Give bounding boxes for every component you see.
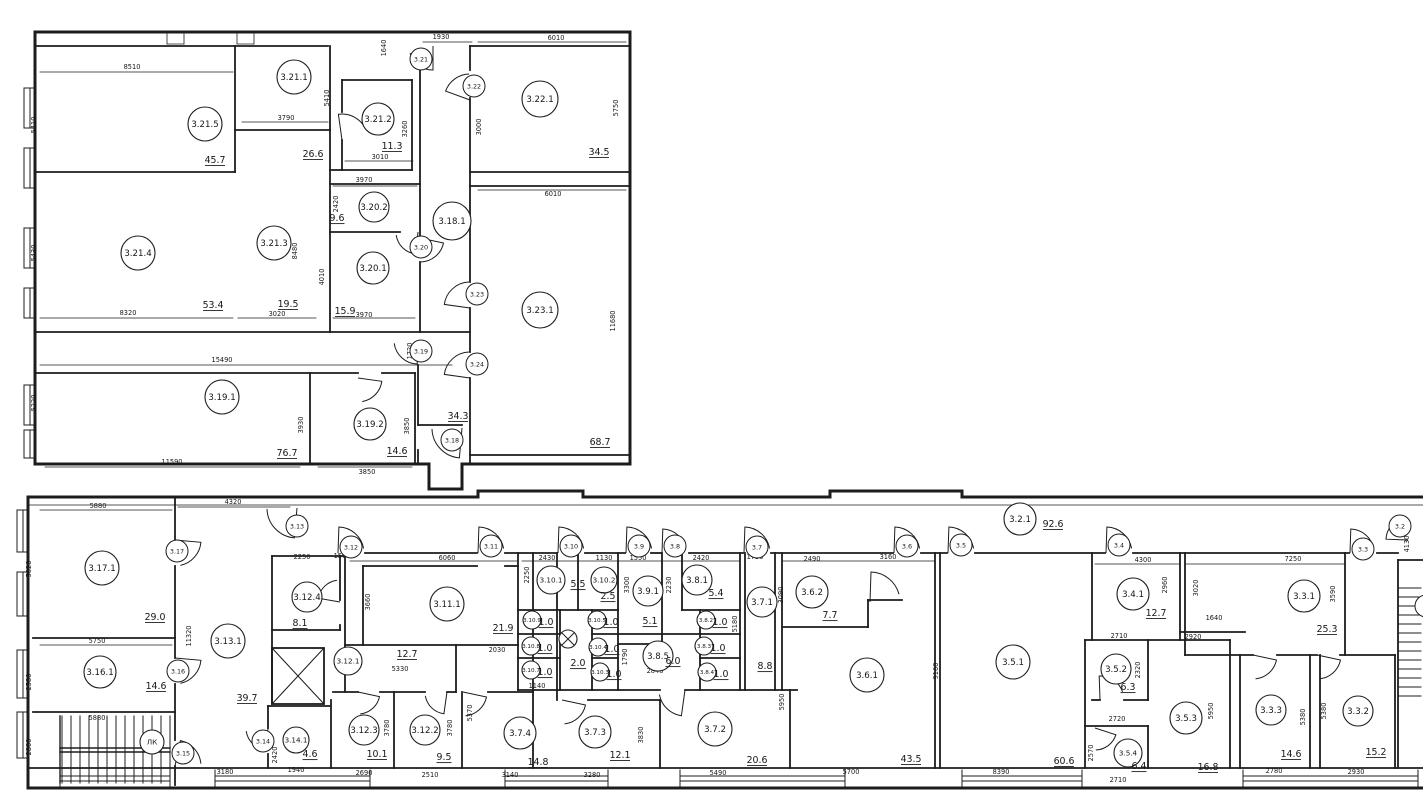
dimension-text: 3970	[356, 311, 373, 319]
door-label: 3.14	[252, 730, 274, 752]
room-label: 3.21.545.7	[188, 107, 225, 166]
room-label: 3.12.310.1	[349, 715, 387, 760]
door-label: 3.11	[480, 535, 502, 557]
room-area: 1.0	[604, 617, 619, 628]
svg-text:3.13: 3.13	[290, 522, 304, 530]
dimension-text: 5880	[90, 502, 107, 510]
svg-text:3.12: 3.12	[344, 543, 358, 551]
dimension-text: 5880	[89, 714, 106, 722]
dimension-text: 2250	[294, 553, 311, 561]
svg-text:3.5.4: 3.5.4	[1119, 749, 1138, 758]
dimension-text: 3660	[364, 594, 372, 611]
dimension-text: 9160	[932, 663, 940, 680]
elevator-shaft	[272, 648, 324, 704]
svg-text:3.22.1: 3.22.1	[526, 95, 553, 105]
room-area: 1.0	[711, 643, 726, 654]
dimension-text: 5380	[1320, 703, 1328, 720]
dimension-text: 2420	[271, 747, 279, 764]
dimension-text: 11680	[609, 311, 617, 332]
dimension-text: 3160	[880, 553, 897, 561]
dimension-text: 2320	[1134, 662, 1142, 679]
room-area: 1.0	[605, 644, 620, 655]
svg-text:3.2: 3.2	[1395, 522, 1405, 530]
svg-text:3.6: 3.6	[902, 542, 912, 550]
door-label: 3.19	[410, 340, 432, 362]
dimension-text: 3780	[383, 720, 391, 737]
room-area: 29.0	[145, 612, 166, 623]
dimension-text: 2250	[523, 567, 531, 584]
svg-text:3.19.2: 3.19.2	[356, 420, 383, 430]
dimension-text: 8480	[291, 243, 299, 260]
dimension-text: 3590	[1329, 586, 1337, 603]
dimension-text: 1930	[433, 33, 450, 41]
svg-text:3.20.1: 3.20.1	[359, 264, 386, 274]
dimension-text: 3000	[475, 119, 483, 136]
dimension-text: 2420	[693, 554, 710, 562]
svg-text:3.6.1: 3.6.1	[856, 671, 878, 681]
room-area: 34.3	[448, 411, 469, 422]
dimension-text: 5490	[710, 769, 727, 777]
dimension-text: 5750	[612, 100, 620, 117]
room-area: 76.7	[277, 448, 298, 459]
room-label: 3.20.115.9	[335, 252, 389, 317]
svg-text:3.8.1: 3.8.1	[686, 576, 708, 586]
room-label: 3.5.46.4	[1114, 739, 1147, 772]
svg-text:3.15: 3.15	[176, 749, 190, 757]
dimension-text: 2570	[1087, 745, 1095, 762]
dimension-text: 3970	[356, 176, 373, 184]
room-area: 45.7	[205, 155, 226, 166]
room-area: 5.5	[571, 579, 586, 590]
dimension-text: 7250	[1285, 555, 1302, 563]
dimension-text: 4300	[1135, 556, 1152, 564]
dimension-text: 2230	[665, 577, 673, 594]
room-label: 3.3.215.2	[1343, 696, 1386, 758]
dimension-text: 3780	[446, 720, 454, 737]
room-area: 2.5	[601, 591, 616, 602]
svg-text:3.16.1: 3.16.1	[86, 668, 113, 678]
room-label: 3.3.314.6	[1256, 695, 1301, 760]
dimension-text: 3140	[502, 771, 519, 779]
room-area: 9.6	[330, 213, 345, 224]
svg-text:3.23.1: 3.23.1	[526, 306, 553, 316]
room-label: 3.21.453.4	[121, 236, 223, 311]
room-area: 5.1	[643, 616, 658, 627]
door-label: 3.16	[167, 660, 189, 682]
dimension-text: 1790	[621, 649, 629, 666]
door-label: 3.22	[463, 75, 485, 97]
room-area: 26.6	[303, 149, 324, 160]
door-label: 3.7	[746, 536, 768, 558]
svg-text:3.11.1: 3.11.1	[433, 600, 460, 610]
dimension-text: 11320	[185, 626, 193, 647]
dimension-text: 3020	[269, 310, 286, 318]
dimension-text: 3260	[401, 121, 409, 138]
dimension-text: 5020	[25, 561, 33, 578]
dimension-text: 1940	[288, 766, 305, 774]
dimension-text: 3850	[403, 418, 411, 435]
svg-text:3.17.1: 3.17.1	[88, 564, 115, 574]
svg-text:3.12.4: 3.12.4	[293, 593, 320, 603]
room-label: 3.7.220.6	[698, 712, 767, 766]
dimension-text: 2580	[25, 674, 33, 691]
room-label: 3.8.56.0	[643, 641, 681, 671]
svg-text:3.3.1: 3.3.1	[1293, 592, 1315, 602]
room-label: 3.10.71.0	[522, 661, 553, 679]
dimension-text: 11590	[162, 458, 183, 466]
svg-text:3.10: 3.10	[564, 542, 578, 550]
door-label: 3.13	[286, 515, 308, 537]
room-label: 3.13.139.7	[211, 624, 257, 704]
dimension-text: 3180	[217, 768, 234, 776]
dimension-text: 3830	[637, 727, 645, 744]
room-label: 3.10.31.0	[591, 663, 622, 681]
svg-text:3.19.1: 3.19.1	[208, 393, 235, 403]
door-label: 3.5	[950, 534, 972, 556]
door-label: 3.6	[896, 535, 918, 557]
room-label: 3.6.27.7	[796, 576, 838, 621]
svg-text:3.14: 3.14	[256, 737, 270, 745]
dimension-text: 5950	[778, 694, 786, 711]
svg-text:3.18.1: 3.18.1	[438, 217, 465, 227]
door-label	[1415, 595, 1423, 617]
door-label: 3.23	[466, 283, 488, 305]
room-label: 3.21.211.3	[362, 103, 402, 152]
windows	[17, 88, 1418, 788]
dimension-text: 4130	[1403, 536, 1411, 553]
svg-text:2.0: 2.0	[571, 658, 586, 669]
room-label: 3.4.112.7	[1117, 578, 1166, 619]
dimension-text: 2960	[1161, 577, 1169, 594]
door-label: 3.4	[1108, 534, 1130, 556]
dimension-text: 2920	[1185, 633, 1202, 641]
floor-plan-svg: 8510541054101640379019306010575030003010…	[0, 0, 1423, 809]
room-label: 3.8.21.0	[697, 611, 728, 629]
dimension-text: 2490	[804, 555, 821, 563]
dimension-text: 1140	[529, 682, 546, 690]
room-area: 1.0	[538, 643, 553, 654]
svg-text:3.8.4: 3.8.4	[700, 670, 715, 676]
room-area: 14.8	[528, 757, 549, 768]
door-label: 3.21	[410, 48, 432, 70]
room-area: 14.6	[387, 446, 408, 457]
room-label: 3.8.31.0	[695, 637, 726, 655]
room-area: 1.0	[607, 669, 622, 680]
svg-text:3.3.3: 3.3.3	[1260, 706, 1282, 716]
svg-text:3.21: 3.21	[414, 55, 428, 63]
room-label: 3.10.22.5	[591, 567, 617, 602]
svg-text:3.3.2: 3.3.2	[1347, 707, 1369, 717]
dimension-text: 3850	[359, 468, 376, 476]
room-area: 15.2	[1366, 747, 1387, 758]
dimension-text: 3280	[584, 771, 601, 779]
room-area: 12.7	[1146, 608, 1167, 619]
room-area: 14.6	[146, 681, 167, 692]
dimension-text: 4320	[225, 498, 242, 506]
svg-text:3.7.4: 3.7.4	[509, 729, 531, 739]
room-label: 3.5.160.6	[996, 645, 1074, 767]
room-label: 3.7.312.1	[579, 716, 630, 761]
dimension-text: 5750	[89, 637, 106, 645]
room-area: 60.6	[1054, 756, 1075, 767]
door-label: 3.17	[166, 540, 188, 562]
dimension-text: 5220	[30, 395, 38, 412]
svg-text:3.18: 3.18	[445, 436, 459, 444]
door-label: 3.24	[466, 353, 488, 375]
svg-text:3.7.3: 3.7.3	[584, 728, 606, 738]
svg-text:3.17: 3.17	[170, 547, 184, 555]
svg-text:3.24: 3.24	[470, 360, 484, 368]
room-label: 3.10.91.0	[523, 611, 554, 629]
room-label: 3.8.41.0	[698, 663, 729, 681]
svg-text:3.8.2: 3.8.2	[699, 618, 713, 624]
dimension-text: 2690	[356, 769, 373, 777]
room-label: 3.23.168.7	[522, 292, 610, 448]
room-label: 3.7.18.8	[747, 587, 777, 672]
room-label: 3.10.81.0	[522, 637, 553, 655]
room-area: 9.5	[437, 752, 452, 763]
dimension-text: 5410	[30, 117, 38, 134]
room-label: ЛК	[140, 730, 164, 754]
room-label: 3.11.121.9	[430, 587, 513, 634]
dimension-text: 8510	[124, 63, 141, 71]
dimension-text: 5370	[466, 705, 474, 722]
room-area: 6.0	[666, 656, 681, 667]
door-label: 3.18	[441, 429, 463, 451]
room-label: 3.9.15.1	[633, 576, 663, 627]
svg-text:3.9: 3.9	[634, 542, 644, 550]
room-label: 3.19.214.6	[354, 408, 407, 457]
dimension-text: 2030	[489, 646, 506, 654]
svg-text:3.5.2: 3.5.2	[1105, 665, 1127, 675]
room-area: 34.5	[589, 147, 610, 158]
room-area: 25.3	[1317, 624, 1338, 635]
room-area: 6.3	[1121, 682, 1136, 693]
room-label: 3.17.129.0	[85, 551, 165, 623]
room-area: 1.0	[539, 617, 554, 628]
svg-text:3.14.1: 3.14.1	[285, 736, 308, 745]
room-label: 3.10.51.0	[588, 611, 619, 629]
svg-text:3.10.1: 3.10.1	[540, 576, 563, 585]
svg-text:3.20.2: 3.20.2	[360, 203, 387, 213]
dimension-text: 2420	[332, 196, 340, 213]
svg-text:3.4.1: 3.4.1	[1122, 590, 1144, 600]
vent-shaft-symbol: 2.0	[559, 630, 586, 669]
svg-text:3.16: 3.16	[171, 667, 185, 675]
svg-text:3.5.3: 3.5.3	[1175, 714, 1197, 724]
dimension-text: 2720	[1109, 715, 1126, 723]
svg-text:3.7.2: 3.7.2	[704, 725, 726, 735]
room-area: 10.1	[367, 749, 388, 760]
room-area: 20.6	[747, 755, 768, 766]
room-area: 12.7	[397, 649, 418, 660]
dimension-text: 8390	[993, 768, 1010, 776]
room-area: 19.5	[278, 299, 299, 310]
svg-text:3.12.3: 3.12.3	[350, 726, 377, 736]
room-area: 6.4	[1132, 761, 1147, 772]
dimension-text: 5430	[30, 245, 38, 262]
room-area: 7.7	[823, 610, 838, 621]
room-area: 92.6	[1043, 519, 1064, 530]
svg-text:3.7: 3.7	[752, 543, 762, 551]
svg-text:3.21.5: 3.21.5	[191, 120, 218, 130]
dimension-text: 3300	[623, 577, 631, 594]
room-label: 3.21.319.5	[257, 226, 298, 310]
dimension-text: 5180	[731, 616, 739, 633]
room-area: 1.0	[713, 617, 728, 628]
dimension-text: 3020	[1192, 580, 1200, 597]
room-area: 4.6	[303, 749, 318, 760]
svg-text:3.21.2: 3.21.2	[364, 115, 391, 125]
room-area: 43.5	[901, 754, 922, 765]
dimension-text: 5380	[1299, 709, 1307, 726]
room-area: 39.7	[237, 693, 258, 704]
room-area: 21.9	[493, 623, 514, 634]
door-label: 3.2	[1389, 515, 1411, 537]
svg-text:3.21.1: 3.21.1	[280, 73, 307, 83]
room-area: 15.9	[335, 306, 356, 317]
room-area: 8.1	[293, 618, 308, 629]
svg-text:3.12.1: 3.12.1	[337, 657, 360, 666]
room-area: 8.8	[758, 661, 773, 672]
svg-text:3.21.4: 3.21.4	[124, 249, 151, 259]
svg-text:ЛК: ЛК	[147, 738, 158, 747]
svg-text:3.20: 3.20	[414, 243, 428, 251]
dimension-text: 4010	[318, 269, 326, 286]
dimension-text: 15490	[212, 356, 233, 364]
dimension-text: 3010	[372, 153, 389, 161]
room-label: 3.6.143.5	[850, 658, 921, 765]
svg-text:3.8.3: 3.8.3	[697, 644, 712, 650]
door-label: 3.15	[172, 742, 194, 764]
room-label: 3.21.126.6	[277, 60, 323, 160]
door-label: 3.20	[410, 236, 432, 258]
room-area: 5.4	[709, 588, 724, 599]
room-label: 3.7.414.8	[504, 717, 548, 768]
room-label: 3.19.176.7	[205, 380, 297, 459]
room-area: 16.8	[1198, 762, 1219, 773]
dimension-text: 3790	[278, 114, 295, 122]
dimension-text: 2710	[1110, 776, 1127, 784]
room-label: 3.5.26.3	[1101, 654, 1136, 693]
svg-text:3.10.2: 3.10.2	[593, 576, 616, 585]
dimension-text: 6010	[548, 34, 565, 42]
svg-text:3.9.1: 3.9.1	[637, 587, 659, 597]
room-area: 1.0	[714, 669, 729, 680]
room-area: 12.1	[610, 750, 631, 761]
dimension-text: 6060	[439, 554, 456, 562]
dimension-text: 2710	[1111, 632, 1128, 640]
door-label: 3.10	[560, 535, 582, 557]
svg-text:3.2.1: 3.2.1	[1009, 515, 1031, 525]
svg-text:3.5: 3.5	[956, 541, 966, 549]
dimension-text: 5410	[323, 90, 331, 107]
svg-text:3.13.1: 3.13.1	[214, 637, 241, 647]
dimension-text: 2930	[1348, 768, 1365, 776]
dimension-text: 1640	[380, 40, 388, 57]
dimension-text: 2780	[1266, 767, 1283, 775]
room-area: 53.4	[203, 300, 224, 311]
door-label: 3.8	[664, 535, 686, 557]
svg-text:3.21.3: 3.21.3	[260, 239, 287, 249]
svg-text:3.3: 3.3	[1358, 545, 1368, 553]
svg-text:3.23: 3.23	[470, 290, 484, 298]
door-label: 3.9	[628, 535, 650, 557]
room-area: 68.7	[590, 437, 611, 448]
room-label: 3.14.14.6	[283, 727, 318, 760]
room-area: 1.0	[538, 667, 553, 678]
room-label: 3.2.192.6	[1004, 503, 1063, 535]
svg-text:3.12.2: 3.12.2	[411, 726, 438, 736]
room-label: 3.18.134.3	[433, 202, 471, 422]
svg-text:3.5.1: 3.5.1	[1002, 658, 1024, 668]
floor-plan: 8510541054101640379019306010575030003010…	[0, 0, 1423, 809]
room-area: 14.6	[1281, 749, 1302, 760]
rooms: 3.21.545.73.21.126.63.21.211.33.20.29.63…	[84, 60, 1386, 773]
dimension-text: 1130	[596, 554, 613, 562]
svg-text:3.22: 3.22	[467, 82, 481, 90]
room-label: 3.12.48.1	[292, 582, 322, 629]
svg-text:3.11: 3.11	[484, 542, 498, 550]
dimension-text: 5700	[843, 768, 860, 776]
dimension-text: 2800	[25, 739, 33, 756]
room-label: 3.16.114.6	[84, 656, 166, 692]
room-label: 3.8.15.4	[682, 565, 724, 599]
svg-text:3.4: 3.4	[1114, 541, 1124, 549]
door-label: 3.3	[1352, 538, 1374, 560]
room-area: 11.3	[382, 141, 403, 152]
dimension-text: 5330	[392, 665, 409, 673]
dimension-text: 3090	[777, 587, 785, 604]
svg-text:3.6.2: 3.6.2	[801, 588, 823, 598]
dimension-text: 2510	[422, 771, 439, 779]
svg-text:3.8: 3.8	[670, 542, 680, 550]
room-label: 3.22.134.5	[522, 81, 609, 158]
dimension-text: 2430	[539, 554, 556, 562]
dimension-text: 3930	[297, 417, 305, 434]
dimension-text: 5950	[1207, 703, 1215, 720]
dimension-text: 1640	[1206, 614, 1223, 622]
svg-text:3.19: 3.19	[414, 347, 428, 355]
dimension-text: 8320	[120, 309, 137, 317]
door-label: 3.12	[340, 536, 362, 558]
svg-text:3.7.1: 3.7.1	[751, 598, 773, 608]
room-label: 3.10.41.0	[589, 638, 620, 656]
dimension-text: 6010	[545, 190, 562, 198]
